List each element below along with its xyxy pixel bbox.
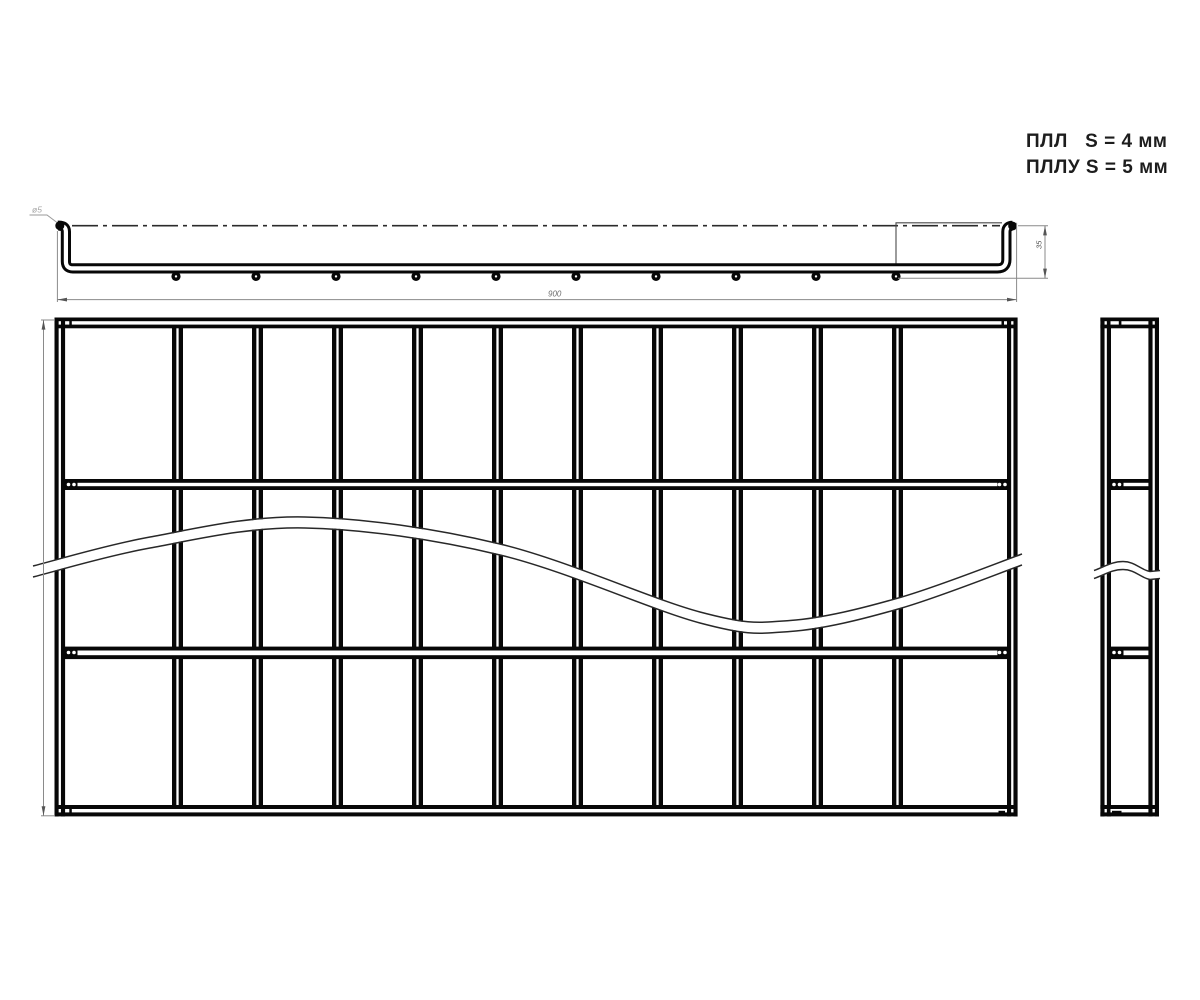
svg-text:35: 35 — [1035, 240, 1044, 249]
svg-text:900: 900 — [548, 290, 562, 299]
svg-text:ø5: ø5 — [32, 205, 42, 215]
